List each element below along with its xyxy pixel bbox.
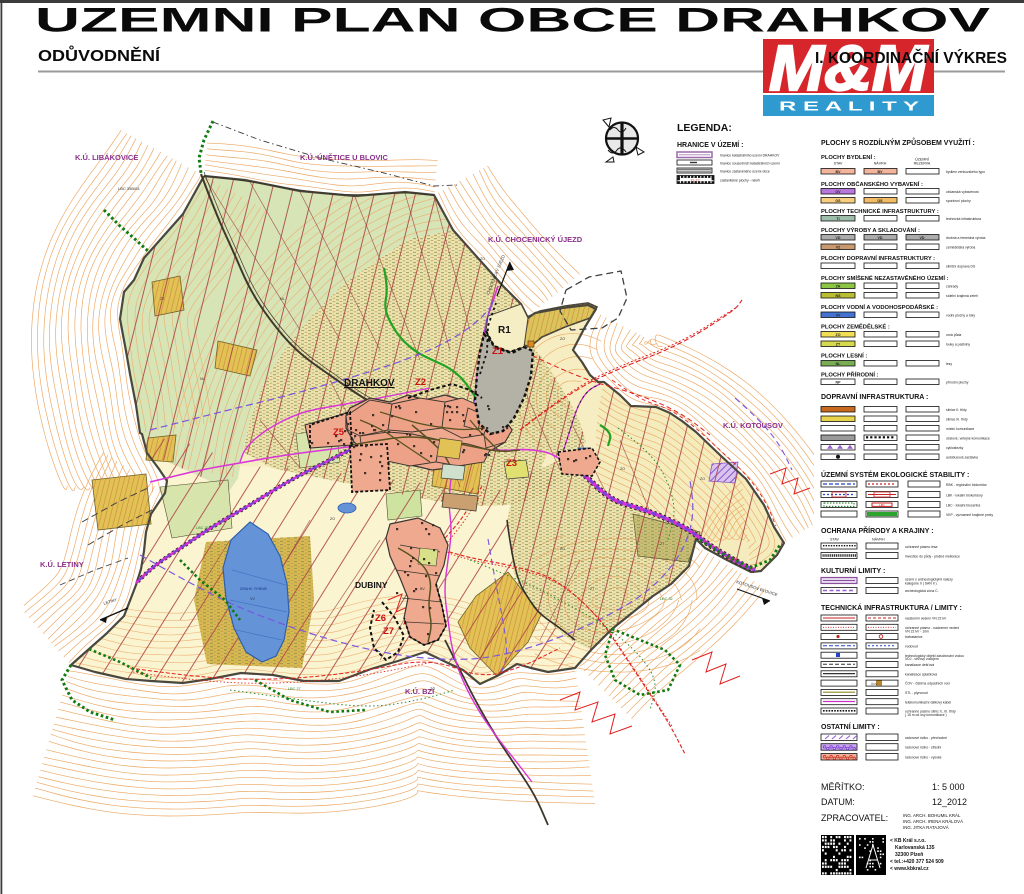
- svg-text:VN 22 kV - 10m: VN 22 kV - 10m: [905, 629, 929, 633]
- svg-text:1: 5 000: 1: 5 000: [932, 782, 965, 792]
- svg-text:LBC 33: LBC 33: [725, 557, 738, 561]
- svg-text:RBK - regionální biokoridor: RBK - regionální biokoridor: [946, 483, 988, 487]
- svg-text:VV: VV: [250, 597, 255, 601]
- svg-text:silnice III. třídy: silnice III. třídy: [946, 418, 968, 422]
- svg-text:ZH: ZH: [836, 284, 841, 288]
- svg-text:NP: NP: [836, 380, 842, 384]
- svg-text:účelové, veřejné komunikace: účelové, veřejné komunikace: [946, 437, 990, 441]
- svg-text:kanalizace splašková: kanalizace splašková: [905, 672, 937, 676]
- svg-text:M&M: M&M: [769, 32, 929, 104]
- svg-text:KULTURNÍ LIMITY :: KULTURNÍ LIMITY :: [821, 566, 885, 575]
- svg-text:ING. JITKA RATAJOVÁ: ING. JITKA RATAJOVÁ: [903, 825, 949, 830]
- svg-text:K.Ú. ÚNĚTICE U BLOVIC: K.Ú. ÚNĚTICE U BLOVIC: [300, 153, 389, 162]
- svg-text:PLOCHY SMÍŠENÉ NEZASTAVĚNÉHO Ú: PLOCHY SMÍŠENÉ NEZASTAVĚNÉHO ÚZEMÍ :: [821, 274, 949, 282]
- svg-text:STAV: STAV: [834, 162, 843, 166]
- svg-text:investice do půdy - plošné mel: investice do půdy - plošné meliorace: [905, 555, 960, 559]
- svg-text:TI: TI: [836, 217, 839, 221]
- svg-text:sportovní plochy: sportovní plochy: [946, 199, 971, 203]
- svg-text:LEGENDA:: LEGENDA:: [677, 122, 732, 134]
- svg-text:Z1-Z7: Z1-Z7: [690, 178, 699, 182]
- svg-text:PLOCHY VÝROBY A SKLADOVÁNÍ :: PLOCHY VÝROBY A SKLADOVÁNÍ :: [821, 226, 920, 234]
- svg-text:KOTOUSOV BLOVICE: KOTOUSOV BLOVICE: [736, 579, 779, 597]
- svg-text:NL: NL: [836, 362, 842, 366]
- svg-text:hranice katastrálního území DR: hranice katastrálního území DRAHKOV: [720, 154, 780, 158]
- svg-text:PLOCHY S ROZDÍLNÝM ZPŮSOBEM VY: PLOCHY S ROZDÍLNÝM ZPŮSOBEM VYUŽITÍ :: [821, 137, 975, 147]
- svg-text:VV: VV: [836, 313, 841, 317]
- svg-text:ZPRACOVATEL:: ZPRACOVATEL:: [821, 813, 888, 823]
- svg-text:PLOCHY DOPRAVNÍ INFRASTRUKTURY: PLOCHY DOPRAVNÍ INFRASTRUKTURY :: [821, 254, 935, 262]
- svg-text:radonové riziko - přechodné: radonové riziko - přechodné: [905, 736, 947, 740]
- svg-text:občanská vybavenost: občanská vybavenost: [946, 190, 979, 194]
- svg-text:Z3: Z3: [506, 458, 517, 469]
- svg-text:kanalizace dešťová: kanalizace dešťová: [905, 663, 934, 667]
- svg-text:OV: OV: [835, 190, 841, 194]
- svg-text:VDJ - věžový vodojem: VDJ - věžový vodojem: [905, 657, 939, 661]
- svg-text:NÁVRH: NÁVRH: [872, 538, 885, 542]
- svg-text:ZO: ZO: [430, 687, 435, 691]
- svg-text:< www.kbkral.cz: < www.kbkral.cz: [890, 866, 929, 872]
- svg-text:R1: R1: [498, 325, 511, 336]
- svg-text:K.Ú. CHOCENICKÝ ÚJEZD: K.Ú. CHOCENICKÝ ÚJEZD: [488, 235, 583, 244]
- svg-text:NÁVRH: NÁVRH: [874, 162, 887, 166]
- svg-text:radonové riziko - vysoké: radonové riziko - vysoké: [905, 756, 942, 760]
- svg-text:Z7: Z7: [383, 626, 394, 637]
- svg-text:ZO: ZO: [620, 467, 625, 471]
- svg-text:Karlovanská 135: Karlovanská 135: [895, 845, 935, 851]
- svg-text:LBC 32: LBC 32: [660, 597, 673, 601]
- svg-text:místní komunikace: místní komunikace: [946, 427, 974, 431]
- svg-text:PLOCHY PŘÍRODNÍ :: PLOCHY PŘÍRODNÍ :: [821, 371, 879, 379]
- svg-text:( 15 m od osy komunikace ): ( 15 m od osy komunikace ): [905, 713, 947, 717]
- svg-text:OS: OS: [835, 199, 841, 203]
- svg-text:DOPRAVNÍ INFRASTRUKTURA :: DOPRAVNÍ INFRASTRUKTURA :: [821, 392, 928, 401]
- svg-text:vodovod: vodovod: [905, 645, 918, 649]
- svg-text:PLOCHY OBČANSKÉHO VYBAVENÍ :: PLOCHY OBČANSKÉHO VYBAVENÍ :: [821, 180, 923, 188]
- svg-text:ZO: ZO: [700, 477, 705, 481]
- svg-text:trafostanice: trafostanice: [905, 635, 923, 639]
- svg-text:LBC: LBC: [879, 503, 884, 507]
- svg-text:ochranné pásmo lesa: ochranné pásmo lesa: [905, 545, 938, 549]
- svg-text:OSTATNÍ LIMITY :: OSTATNÍ LIMITY :: [821, 722, 880, 731]
- svg-text:< tel.:+420 377 524 509: < tel.:+420 377 524 509: [890, 859, 944, 865]
- svg-text:nadzemní vedení VN 22 kV: nadzemní vedení VN 22 kV: [905, 617, 947, 621]
- svg-text:zemědělská výroba: zemědělská výroba: [946, 246, 975, 250]
- svg-text:silnice II. třídy: silnice II. třídy: [946, 408, 967, 412]
- svg-text:ČOV: ČOV: [871, 681, 878, 686]
- svg-text:DRAHK. RYBNÍK: DRAHK. RYBNÍK: [240, 587, 268, 591]
- svg-text:NL: NL: [280, 297, 285, 301]
- svg-text:radonové riziko - střední: radonové riziko - střední: [905, 746, 941, 750]
- svg-text:ING. ARCH. IRENA KRÁLOVÁ: ING. ARCH. IRENA KRÁLOVÁ: [903, 819, 963, 824]
- svg-text:R E A L I T Y: R E A L I T Y: [779, 99, 920, 114]
- svg-text:sídelní krajinná zeleň: sídelní krajinná zeleň: [946, 294, 978, 298]
- svg-text:ZO: ZO: [560, 547, 565, 551]
- svg-text:kategorie II ( SAN II ): kategorie II ( SAN II ): [905, 581, 937, 585]
- svg-text:Z6: Z6: [375, 613, 386, 624]
- svg-text:cyklostezky: cyklostezky: [946, 446, 964, 450]
- svg-text:telekomunikační dálkový kabel: telekomunikační dálkový kabel: [905, 700, 951, 704]
- svg-text:K.Ú. LETINY: K.Ú. LETINY: [40, 560, 84, 569]
- svg-text:BV: BV: [836, 170, 842, 174]
- svg-text:HRANICE V ÚZEMÍ :: HRANICE V ÚZEMÍ :: [677, 140, 744, 149]
- svg-text:OCHRANA PŘÍRODY A KRAJINY :: OCHRANA PŘÍRODY A KRAJINY :: [821, 526, 934, 535]
- svg-text:BV: BV: [350, 437, 355, 441]
- svg-text:32300 Plzeň: 32300 Plzeň: [895, 852, 923, 858]
- svg-text:VD: VD: [920, 236, 925, 240]
- svg-text:STAV: STAV: [830, 538, 839, 542]
- svg-text:Z1: Z1: [492, 346, 504, 357]
- svg-text:LBC 35B/04: LBC 35B/04: [118, 186, 140, 191]
- svg-text:archeologická zóna C.: archeologická zóna C.: [905, 589, 939, 593]
- svg-text:vodní plochy a toky: vodní plochy a toky: [946, 314, 975, 318]
- svg-text:ING. ARCH. BOHUMIL KRÁL: ING. ARCH. BOHUMIL KRÁL: [903, 813, 961, 818]
- svg-text:bydlení venkovského typu: bydlení venkovského typu: [946, 170, 985, 174]
- svg-text:STL - plynovod: STL - plynovod: [905, 691, 928, 695]
- svg-text:REZERVA: REZERVA: [914, 162, 931, 166]
- svg-text:ZO: ZO: [330, 517, 335, 521]
- svg-text:technická infrastruktura: technická infrastruktura: [946, 217, 981, 221]
- svg-text:LBC 26: LBC 26: [196, 526, 209, 530]
- svg-text:DRAHKOV: DRAHKOV: [344, 378, 395, 389]
- svg-text:PLOCHY TECHNICKÉ INFRASTRUKTUR: PLOCHY TECHNICKÉ INFRASTRUKTURY :: [821, 207, 939, 215]
- svg-text:LBK - lokální biokoridory: LBK - lokální biokoridory: [946, 493, 983, 497]
- svg-text:DATUM:: DATUM:: [821, 797, 855, 807]
- svg-text:NL: NL: [200, 377, 205, 381]
- svg-text:PLOCHY BYDLENÍ :: PLOCHY BYDLENÍ :: [821, 153, 876, 161]
- svg-text:LBC 27: LBC 27: [288, 687, 301, 691]
- svg-text:hranice zastavěného území obce: hranice zastavěného území obce: [720, 170, 770, 174]
- svg-text:VD: VD: [878, 236, 883, 240]
- svg-text:přírodní plochy: přírodní plochy: [946, 381, 969, 385]
- svg-text:12_2012: 12_2012: [932, 797, 967, 807]
- svg-text:ZO: ZO: [480, 257, 485, 261]
- svg-text:< KB Král s.r.o.: < KB Král s.r.o.: [890, 838, 926, 844]
- svg-text:DUBINY: DUBINY: [355, 580, 388, 590]
- svg-text:drobná a řemeslná výroba: drobná a řemeslná výroba: [946, 236, 986, 240]
- svg-text:ZO: ZO: [560, 337, 565, 341]
- svg-text:zastavitelné plochy - návrh: zastavitelné plochy - návrh: [720, 178, 760, 182]
- svg-text:PLOCHY VODNÍ A VODOHOSPODÁŘSKÉ: PLOCHY VODNÍ A VODOHOSPODÁŘSKÉ :: [821, 303, 938, 311]
- svg-text:Z5: Z5: [333, 427, 345, 438]
- svg-text:louky a pastviny: louky a pastviny: [946, 343, 970, 347]
- svg-text:NS: NS: [836, 294, 842, 298]
- svg-text:K.Ú. LIBÁKOVICE: K.Ú. LIBÁKOVICE: [75, 153, 138, 162]
- svg-text:lesy: lesy: [946, 362, 952, 366]
- svg-text:BV: BV: [420, 587, 425, 591]
- svg-text:VZ: VZ: [836, 245, 841, 249]
- svg-text:Z2: Z2: [415, 377, 426, 388]
- svg-text:VKP - významné krajinné prvky: VKP - významné krajinné prvky: [946, 513, 993, 517]
- svg-text:BV: BV: [878, 170, 884, 174]
- svg-text:MĚŘÍTKO:: MĚŘÍTKO:: [821, 782, 865, 792]
- svg-text:OS: OS: [877, 199, 883, 203]
- svg-text:LETINY: LETINY: [103, 597, 118, 606]
- svg-text:autobusová zastávka: autobusová zastávka: [946, 456, 978, 460]
- svg-text:LBC - lokální biocentra: LBC - lokální biocentra: [946, 503, 980, 507]
- svg-text:zahrady: zahrady: [946, 285, 958, 289]
- svg-text:orná půda: orná půda: [946, 333, 961, 337]
- svg-text:silniční doprava DS: silniční doprava DS: [946, 265, 976, 269]
- svg-text:VD: VD: [836, 236, 841, 240]
- svg-text:ČOV - čistírna odpadních vod: ČOV - čistírna odpadních vod: [905, 681, 950, 686]
- svg-text:ODŮVODNĚNÍ: ODŮVODNĚNÍ: [38, 45, 161, 65]
- svg-text:PLOCHY LESNÍ :: PLOCHY LESNÍ :: [821, 352, 867, 360]
- svg-text:PLOCHY ZEMĚDĚLSKÉ :: PLOCHY ZEMĚDĚLSKÉ :: [821, 323, 890, 331]
- svg-text:K.Ú. KOTOUSOV: K.Ú. KOTOUSOV: [723, 421, 783, 430]
- svg-text:ÚZEMNÍ SYSTÉM EKOLOGICKÉ STABI: ÚZEMNÍ SYSTÉM EKOLOGICKÉ STABILITY :: [821, 470, 969, 479]
- svg-text:I. KOORDINAČNÍ VÝKRES: I. KOORDINAČNÍ VÝKRES: [815, 49, 1007, 67]
- svg-text:hranice sousedních katastrální: hranice sousedních katastrálních území: [720, 162, 780, 166]
- svg-text:ZO: ZO: [836, 333, 841, 337]
- svg-text:TECHNICKÁ INFRASTRUKTURA / LIM: TECHNICKÁ INFRASTRUKTURA / LIMITY :: [821, 603, 962, 612]
